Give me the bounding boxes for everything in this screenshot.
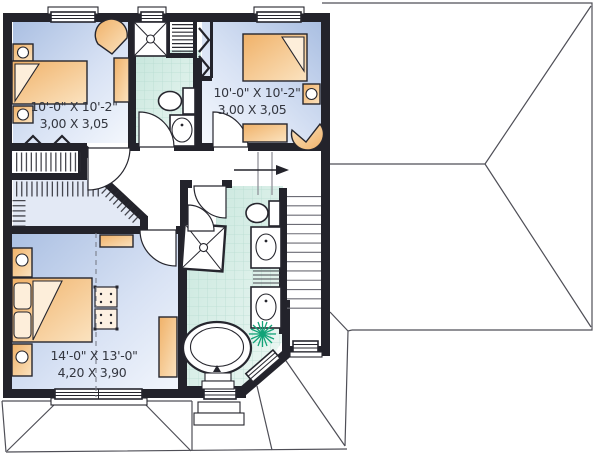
- master-bedroom-metric-label: 4,20 X 3,90: [58, 365, 127, 380]
- bed-pillow: [14, 283, 31, 309]
- master-bedroom-imperial-label: 14'-0" X 13'-0": [50, 348, 137, 363]
- window-stair-bay: [290, 341, 322, 357]
- bedroom-top-right-metric-label: 3,00 X 3,05: [218, 102, 287, 117]
- bed-pillow: [14, 312, 31, 338]
- window-master-bedroom: [51, 389, 147, 405]
- dresser: [243, 124, 287, 142]
- floor-plan-page: 10'-0" X 10'-2" 3,00 X 3,05 10'-0" X 10'…: [0, 0, 600, 455]
- window-hall-bath: [138, 7, 166, 22]
- bedroom-top-left-imperial-label: 10'-0" X 10'-2": [30, 99, 117, 114]
- vanity-ensuite-bottom: [251, 287, 281, 328]
- window-bedroom-top-right: [254, 7, 304, 22]
- bedroom-top-left-metric-label: 3,00 X 3,05: [40, 116, 109, 131]
- window-bedroom-top-left: [48, 7, 98, 22]
- door-bedroom-top-left: [88, 148, 130, 190]
- vanity-ensuite-top: [251, 227, 281, 268]
- dresser: [114, 58, 129, 102]
- bedroom-top-right-imperial-label: 10'-0" X 10'-2": [213, 85, 300, 100]
- shower-hall-bath: [134, 22, 167, 56]
- floor-plan-svg: 10'-0" X 10'-2" 3,00 X 3,05 10'-0" X 10'…: [0, 0, 600, 455]
- console-table: [100, 235, 133, 247]
- dresser: [159, 317, 177, 377]
